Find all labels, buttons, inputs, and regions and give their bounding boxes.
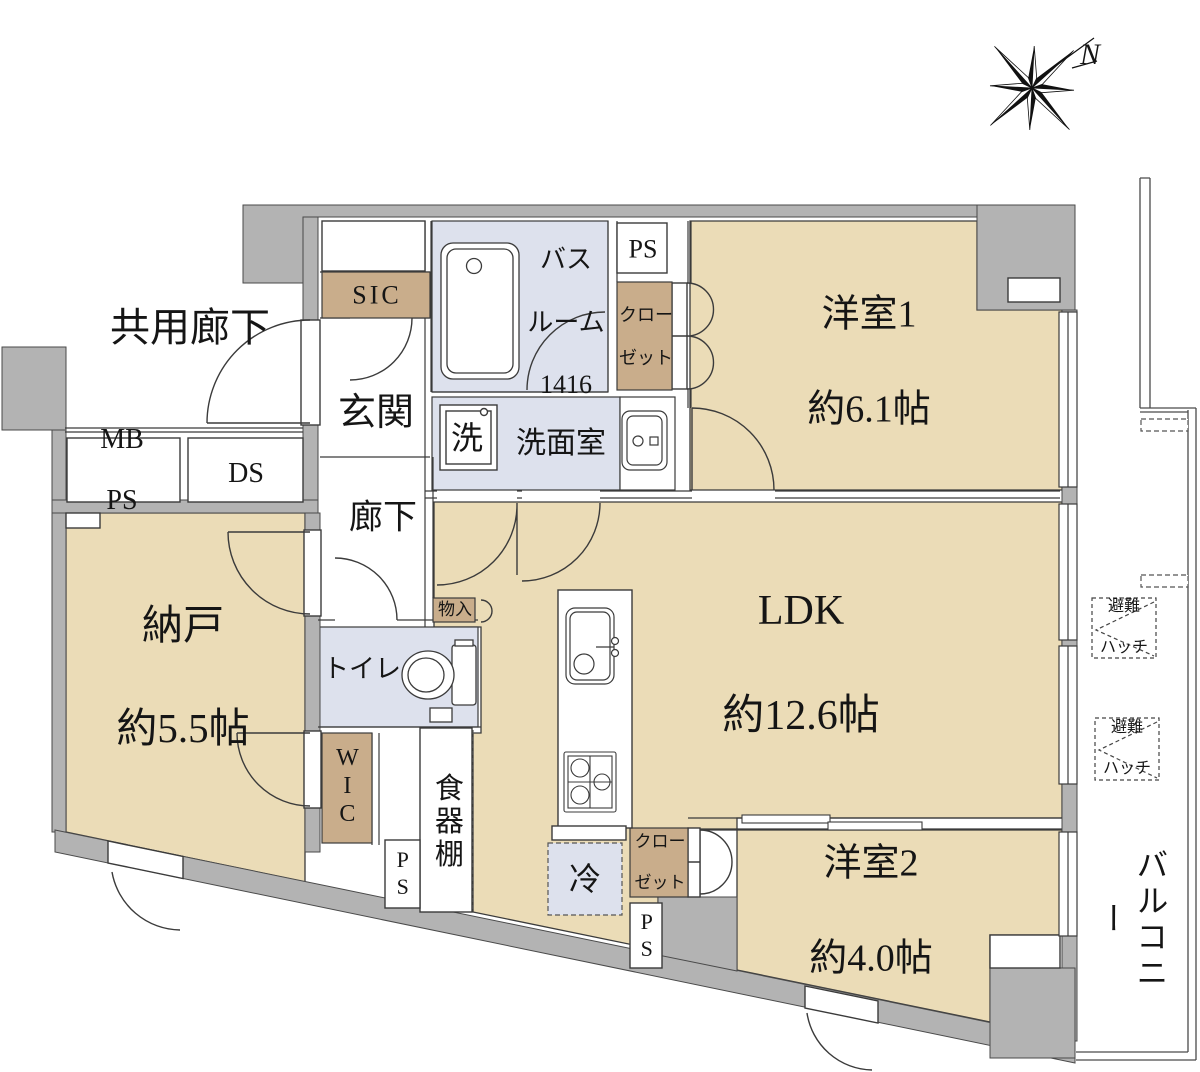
vanity-sink — [622, 411, 667, 470]
washroom-label: 洗面室 — [516, 426, 606, 462]
sic-door — [350, 318, 412, 380]
hatch2-label: 避難 ハッチ — [1103, 697, 1151, 801]
frontdoor-opening — [301, 320, 320, 425]
hatch2-label-line1: 避難 — [1103, 718, 1151, 739]
hatch1-label-line1: 避難 — [1100, 597, 1148, 618]
storageroom-door-opening-upper — [304, 530, 321, 616]
mb-ps-label-line2: PS — [100, 486, 144, 517]
toilet-door — [335, 558, 397, 620]
toilet-label: トイレ — [323, 653, 401, 684]
mb-ps-label-line1: MB — [100, 425, 144, 456]
sic-label: SIC — [352, 279, 401, 310]
closet-top-label-line1: クロー — [619, 305, 673, 327]
common-corridor-label: 共用廊下 — [110, 304, 270, 352]
storageroom-door-opening-lower — [304, 731, 321, 808]
ldk-size: 約12.6帖 — [722, 689, 880, 742]
bedroom1-label: 洋室1 約6.1帖 — [807, 243, 931, 481]
closet-bottom-label-line2: ゼット — [635, 873, 686, 893]
kitchen-sink — [566, 608, 619, 684]
bathroom-label-line3: 1416 — [527, 369, 604, 400]
balcony-partition-dashed — [1141, 419, 1188, 587]
bedroom1-name: 洋室1 — [807, 291, 931, 339]
bathroom-label-line2: ルーム — [527, 306, 604, 337]
hallway-label: 廊下 — [349, 499, 417, 540]
bedroom2-label: 洋室2 約4.0帖 — [809, 792, 933, 1030]
storageroom-niche — [66, 513, 100, 528]
bathroom-label-line1: バス — [527, 244, 604, 275]
wic-label: WIC — [333, 745, 362, 829]
fridge-label: 冷 — [569, 860, 601, 898]
floorplan-page: 共用廊下 SIC バス ルーム 1416 PS クロー ゼット 洋室1 約6.1… — [0, 0, 1200, 1072]
ds-label: DS — [228, 457, 264, 491]
floorplan-drawing — [0, 0, 1200, 1072]
ldk-name: LDK — [722, 584, 880, 637]
ldk-label: LDK 約12.6帖 — [722, 532, 880, 795]
wall-niche-bottomright — [990, 935, 1060, 968]
wall-niche-topright — [1008, 278, 1060, 302]
entrance-label: 玄関 — [338, 391, 414, 437]
ps-left-label: PS — [389, 847, 415, 901]
small-storage-label: 物入 — [438, 600, 472, 620]
closet-bottom-label: クロー ゼット — [635, 812, 686, 914]
bathroom-label: バス ルーム 1416 — [527, 213, 604, 431]
storageroom-size: 約5.5帖 — [116, 703, 249, 754]
storageroom-name: 納戸 — [116, 600, 249, 651]
bedroom1-size: 約6.1帖 — [807, 386, 931, 434]
bathtub — [441, 243, 519, 379]
hatch1-label-line2: ハッチ — [1100, 638, 1148, 659]
bedroom2-name: 洋室2 — [809, 840, 933, 888]
stove — [564, 752, 616, 812]
storageroom-outer-door — [112, 872, 180, 930]
closet-top-label: クロー ゼット — [619, 283, 673, 391]
closet-bottom-folding-doors — [700, 830, 732, 894]
closet-bottom-label-line1: クロー — [635, 832, 686, 852]
hatch1-label: 避難 ハッチ — [1100, 576, 1148, 680]
windows — [1059, 312, 1077, 936]
ps-bottom-label: PS — [633, 909, 659, 963]
entrance-shelf — [322, 221, 425, 271]
north-label: N — [1080, 37, 1100, 73]
hatch2-label-line2: ハッチ — [1103, 759, 1151, 780]
storageroom-label: 納戸 約5.5帖 — [116, 549, 249, 805]
ps-top-label: PS — [629, 233, 658, 264]
cupboard-label: 食器棚 — [429, 773, 464, 872]
bedroom2-size: 約4.0帖 — [809, 935, 933, 983]
balcony-label: バルコニー — [1093, 844, 1170, 996]
mb-ps-label: MB PS — [100, 394, 144, 548]
closet-top-label-line2: ゼット — [619, 348, 673, 370]
washer-label: 洗 — [451, 419, 483, 457]
